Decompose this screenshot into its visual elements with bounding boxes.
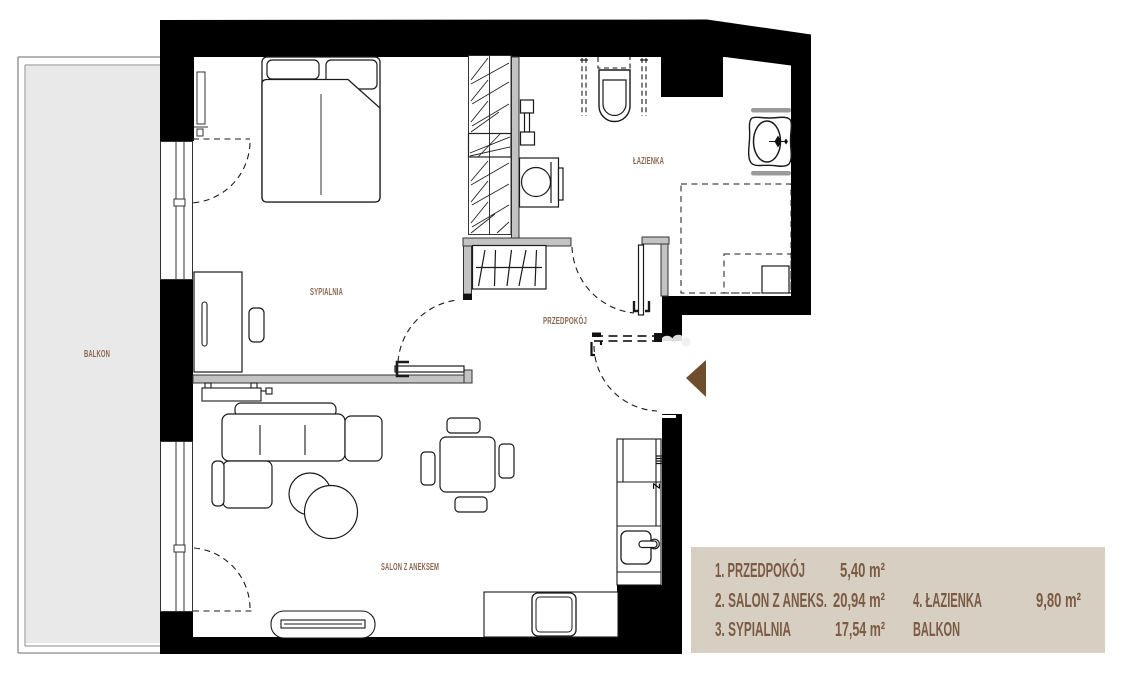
svg-text:4. ŁAZIENKA: 4. ŁAZIENKA: [913, 590, 982, 612]
svg-text:1. PRZEDPOKÓJ: 1. PRZEDPOKÓJ: [715, 558, 805, 582]
svg-text:ŁAZIENKA: ŁAZIENKA: [633, 156, 664, 167]
svg-text:SYPIALNIA: SYPIALNIA: [310, 287, 343, 298]
svg-text:3. SYPIALNIA: 3. SYPIALNIA: [715, 619, 791, 641]
svg-text:9,80 m²: 9,80 m²: [1036, 590, 1081, 612]
svg-text:Z: Z: [650, 483, 661, 489]
svg-text:PRZEDPOKÓJ: PRZEDPOKÓJ: [543, 314, 587, 327]
svg-text:17,54 m²: 17,54 m²: [835, 619, 885, 641]
svg-text:SALON Z ANEKSEM: SALON Z ANEKSEM: [381, 562, 439, 573]
svg-text:BALKON: BALKON: [913, 619, 960, 641]
svg-text:2. SALON Z ANEKS.: 2. SALON Z ANEKS.: [715, 590, 827, 612]
svg-text:BALKON: BALKON: [84, 349, 110, 360]
svg-text:20,94 m²: 20,94 m²: [833, 590, 885, 612]
svg-text:5,40 m²: 5,40 m²: [840, 560, 885, 582]
